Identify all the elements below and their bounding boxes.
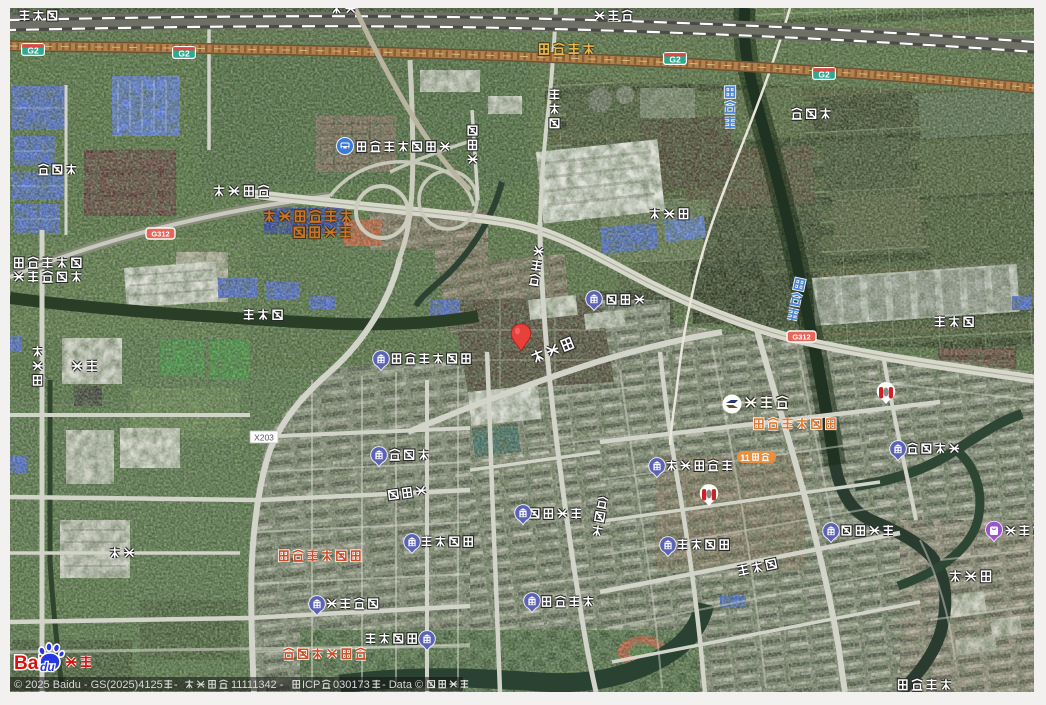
svg-text:G2: G2: [178, 49, 190, 59]
svg-text:© 2025 Baidu - GS(2025)4125: © 2025 Baidu - GS(2025)4125: [14, 679, 163, 691]
svg-text:ICP: ICP: [302, 679, 320, 691]
svg-text:-: -: [174, 679, 178, 691]
svg-text:030173: 030173: [333, 679, 370, 691]
svg-text:G2: G2: [27, 46, 39, 56]
svg-text:du: du: [40, 660, 55, 674]
svg-text:11111342 -: 11111342 -: [231, 679, 284, 691]
svg-text:G2: G2: [818, 70, 830, 80]
svg-text:- Data ©: - Data ©: [382, 679, 423, 691]
svg-text:G312: G312: [792, 333, 810, 342]
svg-text:G312: G312: [151, 230, 169, 239]
svg-text:11: 11: [740, 453, 750, 463]
svg-text:G2: G2: [669, 55, 681, 65]
svg-text:X203: X203: [254, 433, 274, 443]
